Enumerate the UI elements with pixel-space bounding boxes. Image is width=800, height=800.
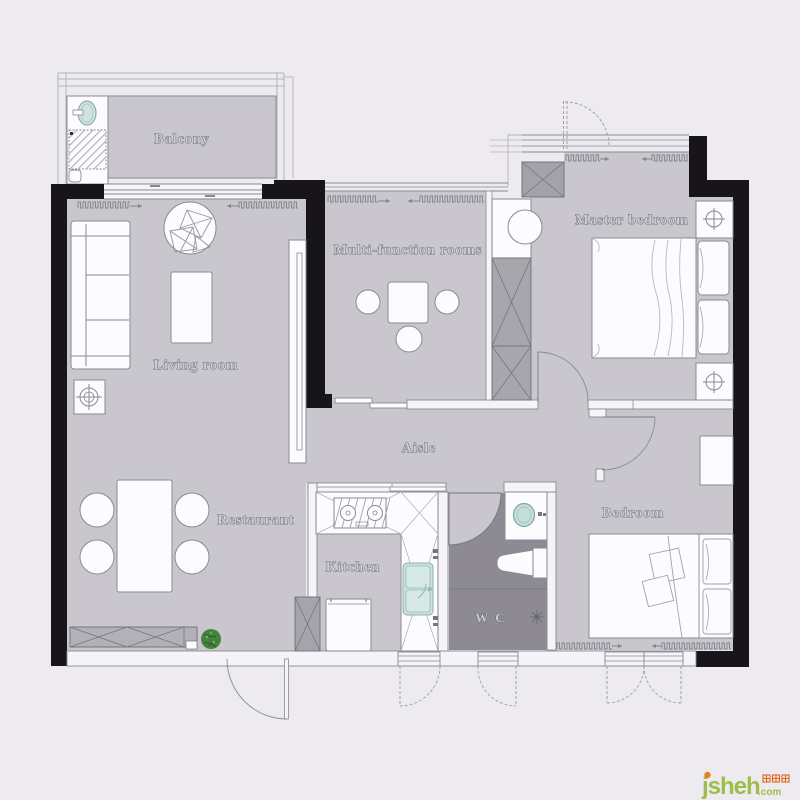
svg-text:Living room: Living room — [153, 358, 238, 373]
svg-text:Master bedroom: Master bedroom — [575, 213, 688, 228]
svg-text:Bedroom: Bedroom — [602, 506, 664, 521]
svg-text:.com: .com — [758, 787, 781, 798]
svg-text:Restaurant: Restaurant — [218, 513, 295, 528]
svg-text:Kitchen: Kitchen — [326, 560, 380, 575]
svg-text:Aisle: Aisle — [402, 441, 437, 456]
svg-text:Balcony: Balcony — [154, 132, 209, 147]
svg-text:W C: W C — [475, 610, 506, 625]
svg-text:Multi-function rooms: Multi-function rooms — [334, 243, 482, 258]
